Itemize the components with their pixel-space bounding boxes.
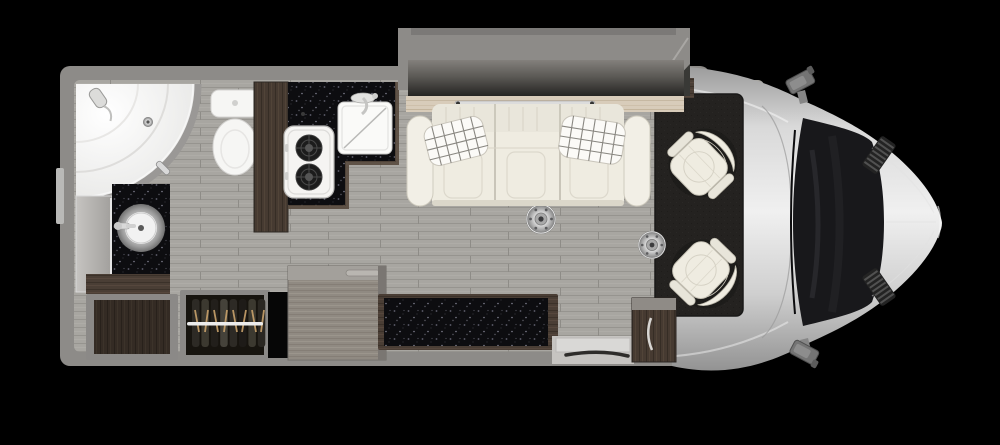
windshield — [791, 118, 884, 326]
vanity-base-cabinet — [86, 274, 170, 294]
burner-rear — [296, 164, 322, 190]
cooktop-knob — [285, 144, 289, 152]
floorplan-canvas — [0, 0, 1000, 445]
counter-detail-dot — [301, 112, 305, 116]
cabinet-gap — [268, 292, 288, 358]
fridge-lid-handle — [346, 270, 380, 276]
cooktop-knob — [285, 172, 289, 180]
burner-front — [296, 135, 322, 161]
wardrobe — [180, 290, 270, 360]
slide-interior-wall — [408, 60, 684, 98]
toilet — [211, 90, 259, 175]
refrigerator-cabinet — [288, 266, 386, 360]
table-mount-front — [526, 204, 556, 234]
credenza-countertop — [384, 298, 548, 346]
two-burner-cooktop — [284, 126, 334, 198]
flush-button — [232, 100, 238, 106]
open-cubby — [86, 294, 178, 360]
wardrobe-rod — [187, 322, 263, 326]
table-mount-rear — [638, 231, 666, 259]
entry-step — [552, 336, 634, 364]
rear-door-hinge-trim — [56, 168, 64, 224]
rv-floorplan-image — [0, 0, 1000, 445]
galley-side-panel — [254, 82, 288, 232]
entry-cabinet — [632, 298, 676, 362]
sofa-armrest-right — [624, 116, 650, 206]
